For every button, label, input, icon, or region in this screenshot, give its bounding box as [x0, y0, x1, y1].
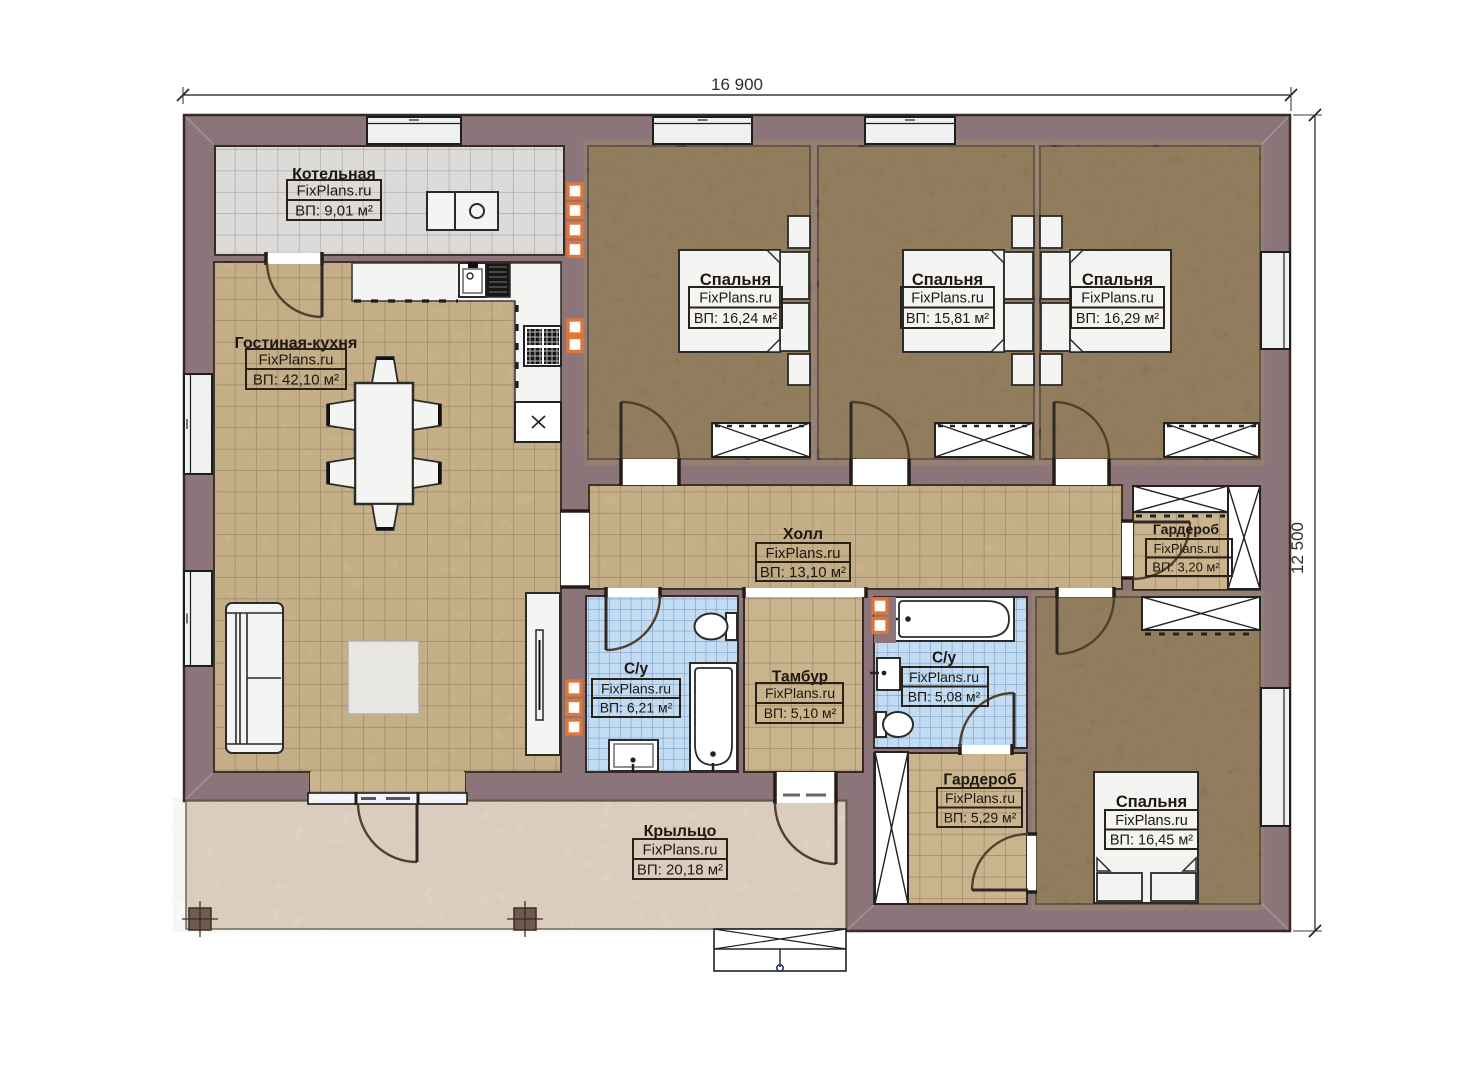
svg-text:FixPlans.ru: FixPlans.ru — [1081, 290, 1154, 306]
svg-text:ВП: 16,24 м²: ВП: 16,24 м² — [694, 311, 777, 327]
svg-text:FixPlans.ru: FixPlans.ru — [1115, 813, 1188, 829]
svg-text:12 500: 12 500 — [1288, 522, 1307, 574]
svg-text:ВП: 16,45 м²: ВП: 16,45 м² — [1110, 832, 1193, 848]
svg-text:ВП: 6,21 м²: ВП: 6,21 м² — [600, 700, 673, 716]
svg-text:FixPlans.ru: FixPlans.ru — [765, 685, 835, 701]
svg-text:С/у: С/у — [932, 650, 957, 667]
svg-text:Крыльцо: Крыльцо — [644, 823, 717, 840]
svg-text:ВП: 13,10 м²: ВП: 13,10 м² — [760, 564, 846, 581]
svg-text:ВП: 5,29 м²: ВП: 5,29 м² — [944, 809, 1017, 825]
svg-text:ВП: 20,18 м²: ВП: 20,18 м² — [637, 861, 723, 878]
svg-text:ВП: 9,01 м²: ВП: 9,01 м² — [295, 202, 373, 219]
svg-text:FixPlans.ru: FixPlans.ru — [909, 669, 979, 685]
svg-text:16 900: 16 900 — [711, 75, 763, 94]
svg-text:FixPlans.ru: FixPlans.ru — [642, 841, 717, 858]
svg-text:FixPlans.ru: FixPlans.ru — [911, 290, 984, 306]
svg-text:FixPlans.ru: FixPlans.ru — [699, 290, 772, 306]
svg-text:Спальня: Спальня — [1116, 793, 1187, 811]
svg-text:ВП: 15,81 м²: ВП: 15,81 м² — [906, 311, 989, 327]
svg-text:ВП: 16,29 м²: ВП: 16,29 м² — [1076, 311, 1159, 327]
svg-text:FixPlans.ru: FixPlans.ru — [945, 790, 1015, 806]
svg-text:ВП: 3,20 м²: ВП: 3,20 м² — [1152, 559, 1220, 574]
svg-text:Гардероб: Гардероб — [943, 772, 1016, 789]
svg-text:FixPlans.ru: FixPlans.ru — [1153, 541, 1218, 556]
svg-text:ВП: 42,10 м²: ВП: 42,10 м² — [253, 371, 339, 388]
svg-text:С/у: С/у — [624, 661, 649, 678]
svg-text:FixPlans.ru: FixPlans.ru — [601, 681, 671, 697]
svg-text:ВП: 5,10 м²: ВП: 5,10 м² — [764, 705, 837, 721]
svg-text:FixPlans.ru: FixPlans.ru — [765, 545, 840, 562]
svg-text:FixPlans.ru: FixPlans.ru — [296, 182, 371, 199]
svg-text:FixPlans.ru: FixPlans.ru — [258, 351, 333, 368]
svg-text:Гардероб: Гардероб — [1153, 521, 1220, 537]
svg-text:Холл: Холл — [783, 526, 823, 543]
svg-text:ВП: 5,08 м²: ВП: 5,08 м² — [908, 688, 981, 704]
